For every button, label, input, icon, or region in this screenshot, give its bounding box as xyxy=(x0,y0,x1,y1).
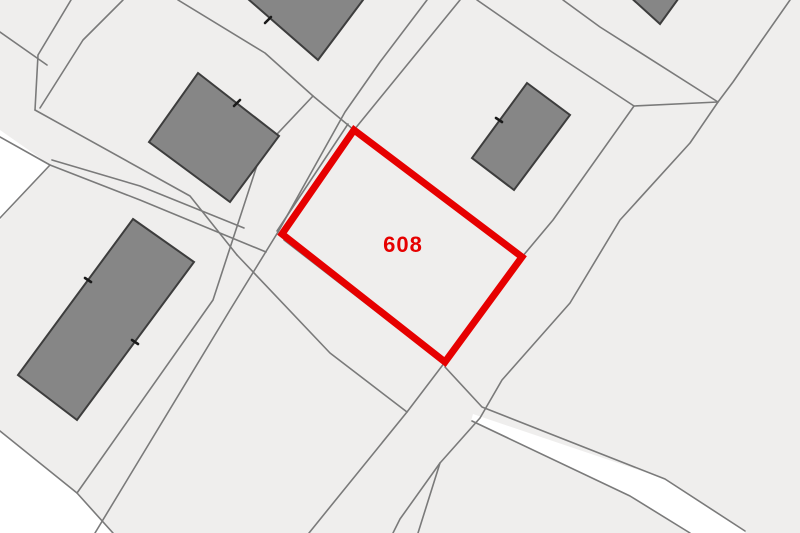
parcel-boundary-line xyxy=(563,0,718,102)
building-right xyxy=(472,83,570,190)
white-area-bottom-left xyxy=(0,431,113,533)
white-path-bottom-right xyxy=(471,414,745,533)
building-center-left xyxy=(149,73,279,202)
parcel-boundary-line xyxy=(477,0,634,106)
parcel-boundary-line xyxy=(35,0,71,110)
parcel-boundary-line xyxy=(237,255,407,412)
parcel-number-label: 608 xyxy=(383,232,423,257)
cadastral-map-canvas[interactable]: 608 xyxy=(0,0,800,533)
parcel-boundary-line xyxy=(418,463,440,533)
survey-tick-mark xyxy=(265,17,271,23)
parcel-boundary-line xyxy=(309,362,445,533)
parcel-boundary-line xyxy=(634,102,718,106)
building-left-large xyxy=(18,219,194,420)
parcel-boundary-line xyxy=(393,0,790,533)
white-area-left xyxy=(0,130,50,220)
parcel-boundary-line xyxy=(0,32,47,65)
parcel-boundary-line xyxy=(277,124,348,231)
parcel-boundary-line xyxy=(354,0,460,130)
cadastral-map[interactable]: 608 xyxy=(0,0,800,533)
buildings-layer xyxy=(18,0,681,420)
building-top-right xyxy=(617,0,681,24)
building-top-middle xyxy=(240,0,372,60)
parcel-boundary-line xyxy=(40,0,123,108)
